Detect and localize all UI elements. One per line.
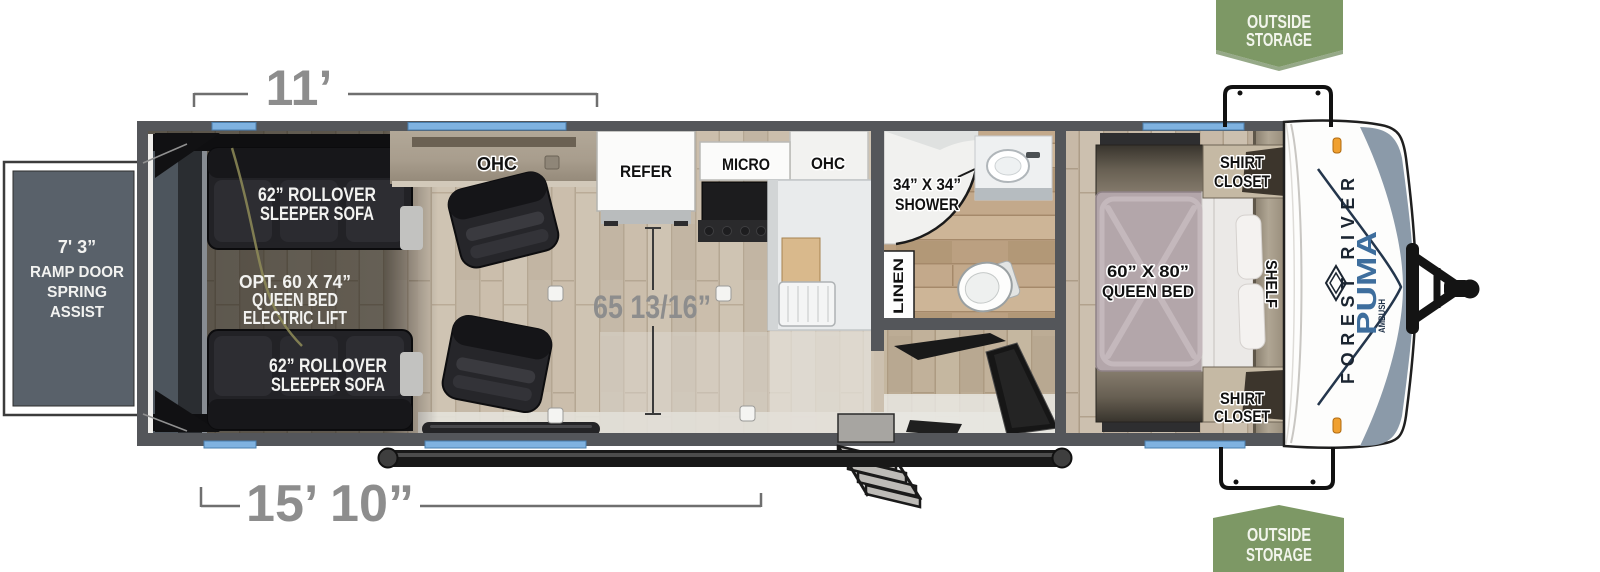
svg-text:STORAGE: STORAGE [1246,545,1312,565]
svg-text:CLOSET: CLOSET [1214,408,1270,426]
svg-text:SHOWER: SHOWER [895,195,959,214]
svg-text:60” X 80”: 60” X 80” [1107,262,1189,281]
svg-text:ASSIST: ASSIST [50,304,104,321]
svg-text:SLEEPER SOFA: SLEEPER SOFA [260,204,374,225]
svg-text:RAMP DOOR: RAMP DOOR [30,264,124,281]
svg-text:62” ROLLOVER: 62” ROLLOVER [258,185,376,206]
svg-text:STORAGE: STORAGE [1246,30,1312,50]
svg-text:OPT. 60 X 74”: OPT. 60 X 74” [239,272,351,292]
svg-text:ELECTRIC LIFT: ELECTRIC LIFT [243,308,347,328]
svg-text:OHC: OHC [811,154,845,173]
svg-text:QUEEN BED: QUEEN BED [1102,282,1194,301]
svg-text:OUTSIDE: OUTSIDE [1247,12,1311,32]
svg-text:SPRING: SPRING [47,284,107,301]
svg-text:SLEEPER SOFA: SLEEPER SOFA [271,375,385,396]
svg-text:REFER: REFER [620,162,672,181]
svg-text:OHC: OHC [477,154,517,174]
svg-text:34” X 34”: 34” X 34” [893,175,961,194]
svg-text:7' 3”: 7' 3” [58,237,96,257]
svg-text:11’: 11’ [266,60,333,116]
svg-text:62” ROLLOVER: 62” ROLLOVER [269,356,387,377]
svg-text:AMBUSH: AMBUSH [1377,299,1387,333]
svg-text:QUEEN BED: QUEEN BED [252,290,338,310]
svg-text:CLOSET: CLOSET [1214,173,1270,191]
svg-text:SHELF: SHELF [1262,260,1279,308]
svg-text:LINEN: LINEN [890,258,906,314]
svg-text:SHIRT: SHIRT [1220,154,1264,172]
svg-text:MICRO: MICRO [722,155,770,174]
svg-text:SHIRT: SHIRT [1220,390,1264,408]
svg-text:65 13/16”: 65 13/16” [593,289,711,325]
svg-text:OUTSIDE: OUTSIDE [1247,525,1311,545]
svg-text:15’ 10”: 15’ 10” [246,475,414,533]
